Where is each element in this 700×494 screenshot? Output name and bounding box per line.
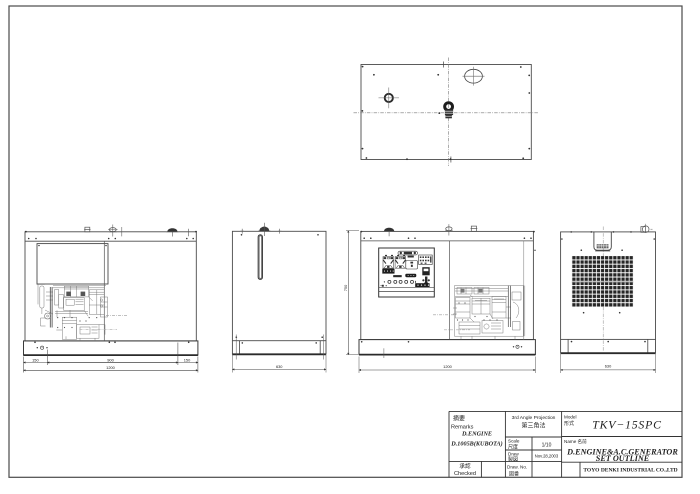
svg-text:Checked: Checked	[454, 471, 476, 477]
svg-text:摘要: 摘要	[453, 415, 465, 423]
svg-text:Scale: Scale	[508, 439, 520, 444]
svg-text:750: 750	[343, 284, 348, 291]
svg-text:1/10: 1/10	[542, 443, 552, 449]
svg-text:承認: 承認	[459, 462, 471, 470]
svg-text:630: 630	[605, 364, 612, 369]
svg-text:Draw: Draw	[508, 452, 519, 457]
svg-text:1200: 1200	[443, 364, 452, 369]
svg-text:D.ENGINE: D.ENGINE	[461, 431, 492, 438]
svg-text:Model: Model	[564, 415, 577, 420]
svg-text:SET OUTLINE: SET OUTLINE	[596, 454, 650, 463]
svg-text:3rd Angle Projection: 3rd Angle Projection	[512, 415, 556, 421]
svg-text:製図: 製図	[508, 456, 518, 463]
svg-text:Draw. No.: Draw. No.	[507, 465, 527, 470]
svg-text:Name 名前: Name 名前	[564, 438, 587, 445]
svg-text:図番: 図番	[509, 471, 519, 478]
svg-text:第三角法: 第三角法	[521, 422, 545, 430]
svg-text:TOYO DENKI INDUSTRIAL CO.,LTD: TOYO DENKI INDUSTRIAL CO.,LTD	[583, 468, 677, 474]
svg-text:TKV−15SPC: TKV−15SPC	[592, 418, 662, 432]
svg-text:150: 150	[184, 357, 191, 362]
svg-text:150: 150	[32, 357, 39, 362]
svg-text:形式: 形式	[564, 420, 574, 427]
svg-text:900: 900	[107, 357, 114, 362]
svg-text:尺度: 尺度	[508, 444, 518, 451]
svg-text:Nov.28,2003: Nov.28,2003	[535, 454, 559, 459]
svg-text:1200: 1200	[106, 365, 115, 370]
svg-text:D.1005B(KUBOTA): D.1005B(KUBOTA)	[450, 441, 502, 448]
svg-text:630: 630	[276, 364, 283, 369]
